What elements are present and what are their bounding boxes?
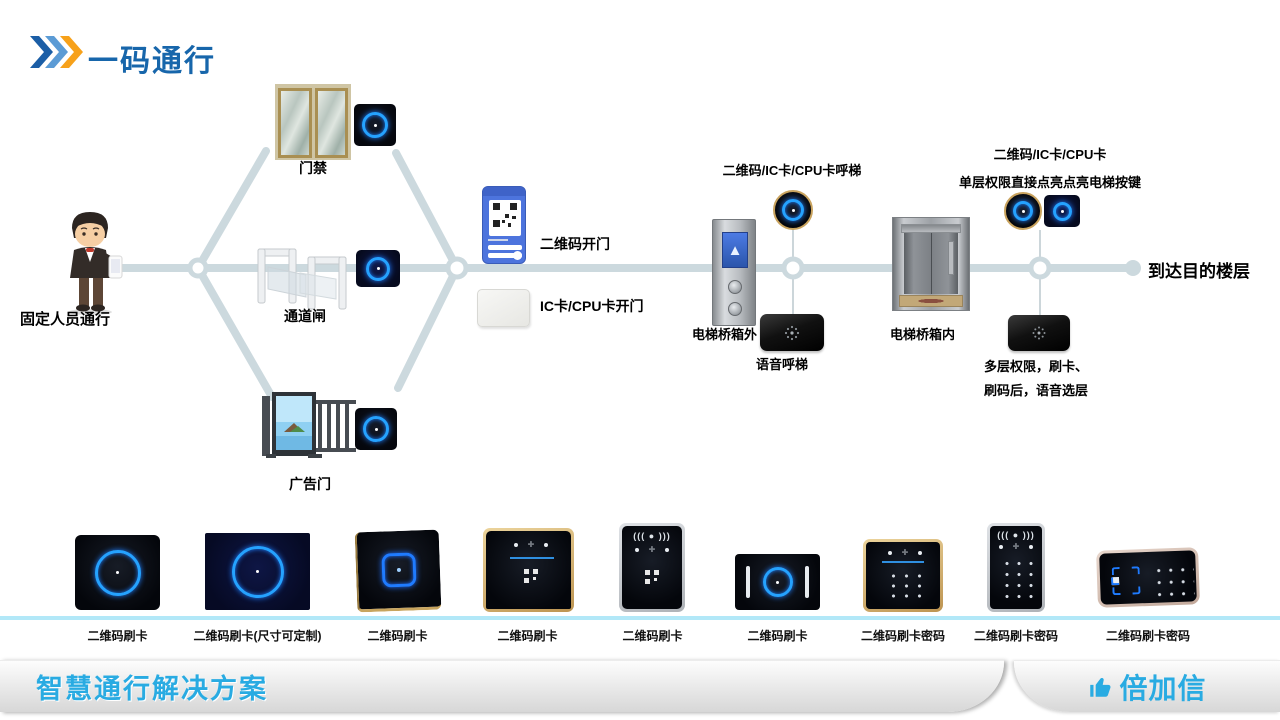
speaker-icon <box>1028 322 1050 344</box>
round-qr-reader-icon <box>1004 192 1042 230</box>
qr-reader-icon <box>355 408 397 450</box>
door-leaf <box>278 88 312 158</box>
elevator-buttons-panel <box>948 241 954 275</box>
phone-header <box>483 187 525 196</box>
product-label: 二维码刷卡密码 <box>1090 627 1206 644</box>
outside-label: 电梯桥箱外 <box>692 324 757 343</box>
product-qr-reader-3 <box>355 530 442 613</box>
brand-name: 倍加信 <box>1119 667 1206 707</box>
product-keypad-reader-7: ✛ <box>863 539 943 612</box>
thumbs-up-icon <box>1087 674 1113 700</box>
phone-button <box>488 245 522 250</box>
elevator-cab <box>904 233 958 294</box>
divider-line <box>0 616 1280 620</box>
product-qr-reader-1 <box>75 535 160 610</box>
elevator-carpet <box>899 295 963 307</box>
turnstile-image <box>256 243 354 311</box>
door-leaf <box>315 88 349 158</box>
call-panel-screen: ▲ <box>722 232 748 268</box>
voice-floor-label-2: 刷码后，语音选层 <box>984 380 1088 399</box>
product-qr-reader-6 <box>735 554 820 610</box>
qr-code <box>493 203 517 227</box>
product-keypad-reader-9: ✛ <box>1096 547 1200 608</box>
voice-floor-box-image <box>1008 315 1070 351</box>
call-button-up <box>728 280 742 294</box>
product-label: 二维码刷卡(尺寸可定制) <box>185 627 330 644</box>
ad-gate-image <box>262 392 358 464</box>
person-with-phone <box>52 208 132 316</box>
product-qr-reader-4: ✛ <box>483 528 574 612</box>
voice-call-box-image <box>760 314 824 351</box>
open-ic-label: IC卡/CPU卡开门 <box>540 296 643 316</box>
product-label: 二维码刷卡密码 <box>958 627 1074 644</box>
phone-text-line <box>488 239 508 241</box>
footer-left-panel: 智慧通行解决方案 <box>0 660 1004 712</box>
elevator-interior-image <box>892 217 970 311</box>
voice-floor-label-1: 多层权限，刷卡、 <box>984 356 1088 375</box>
round-qr-reader-icon <box>773 190 813 230</box>
phone-qr-image <box>482 186 526 264</box>
ic-card-image <box>477 289 530 327</box>
product-label: 二维码刷卡 <box>340 627 455 644</box>
phone-fab <box>513 251 522 260</box>
product-label: 二维码刷卡 <box>720 627 835 644</box>
start-label: 固定人员通行 <box>20 308 110 329</box>
footer-brand-panel: 倍加信 <box>1014 660 1280 712</box>
end-label: 到达目的楼层 <box>1148 257 1250 282</box>
product-qr-reader-5: ((( ● ))) ✛ <box>619 523 685 612</box>
door-seam <box>931 233 932 294</box>
elevator-lintel <box>901 224 961 233</box>
speaker-icon <box>780 321 804 345</box>
qr-reader-icon <box>356 250 400 287</box>
qr-reader-icon <box>354 104 396 146</box>
product-qr-reader-2 <box>205 533 310 610</box>
gate-top-label: 门禁 <box>275 158 351 178</box>
inside-top-label-1: 二维码/IC卡/CPU卡 <box>920 144 1180 163</box>
qr-card <box>489 200 521 236</box>
call-elevator-label: 二维码/IC卡/CPU卡呼梯 <box>672 160 912 179</box>
product-label: 二维码刷卡密码 <box>845 627 961 644</box>
elevator-call-panel-image: ▲ <box>712 219 756 326</box>
product-label: 二维码刷卡 <box>60 627 175 644</box>
open-qr-label: 二维码开门 <box>540 234 610 254</box>
inside-top-label-2: 单层权限直接点亮点亮电梯按键 <box>920 172 1180 191</box>
inside-label: 电梯桥箱内 <box>890 324 955 343</box>
gate-bottom-label: 广告门 <box>262 474 358 494</box>
voice-call-label: 语音呼梯 <box>756 354 808 373</box>
product-keypad-reader-8: ((( ● ))) ✛ <box>987 523 1045 612</box>
slide: 一码通行 <box>0 0 1280 720</box>
gate-mid-label: 通道闸 <box>256 306 354 326</box>
footer-title: 智慧通行解决方案 <box>36 667 268 706</box>
access-door-image <box>275 84 351 160</box>
product-label: 二维码刷卡 <box>595 627 710 644</box>
qr-reader-icon <box>1044 195 1080 227</box>
call-button-down <box>728 302 742 316</box>
product-label: 二维码刷卡 <box>470 627 585 644</box>
